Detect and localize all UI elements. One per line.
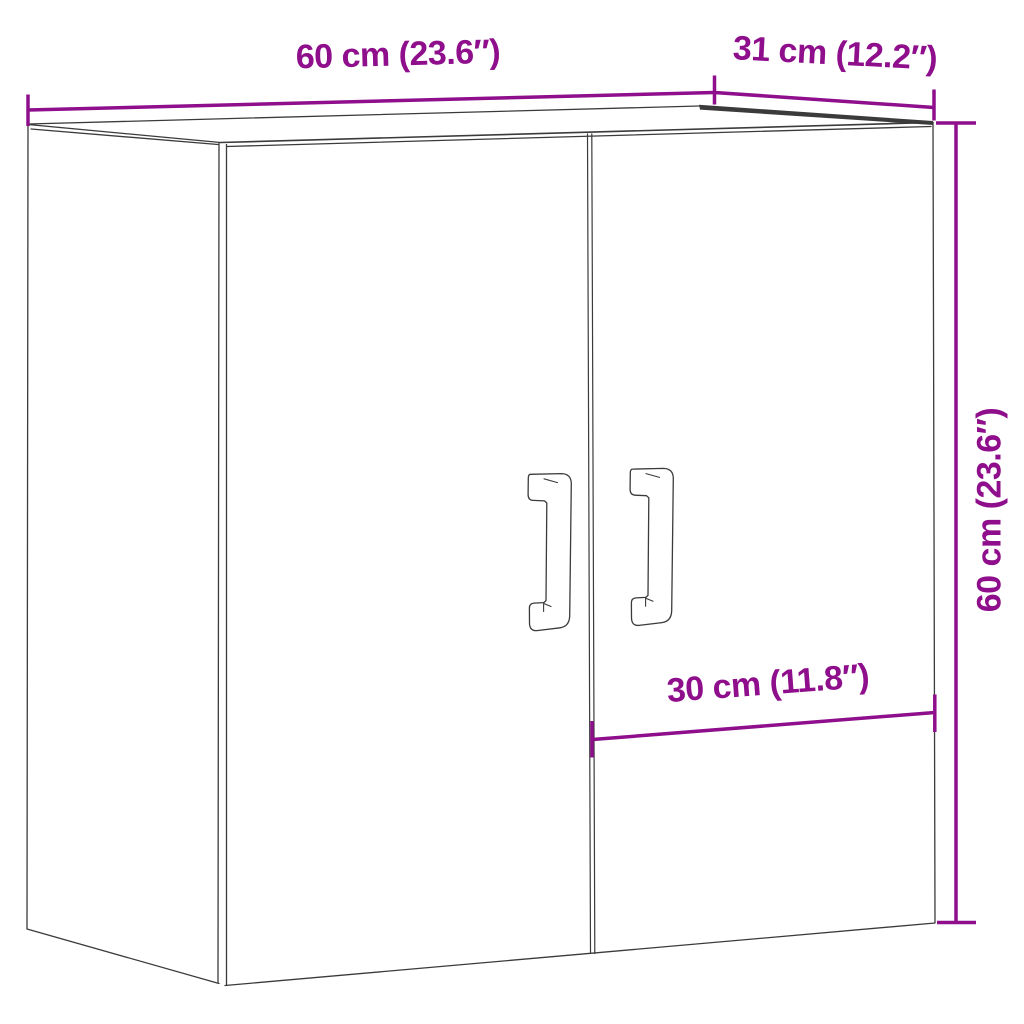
dimension-line-depth xyxy=(715,93,935,108)
cabinet-body xyxy=(27,105,935,986)
left-side-panel-edge xyxy=(27,125,219,984)
cabinet-line-art xyxy=(0,0,1024,1024)
dimension-label-height: 60 cm (23.6″) xyxy=(971,408,1010,612)
product-dimension-image: 60 cm (23.6″) 31 cm (12.2″) 60 cm (23.6″… xyxy=(0,0,1024,1024)
top-left-edge-outer xyxy=(28,125,221,143)
top-left-edge-inner xyxy=(31,129,218,145)
dimension-line-width xyxy=(28,93,715,111)
dimension-label-width: 60 cm (23.6″) xyxy=(295,33,500,78)
doors-top-edge xyxy=(227,127,931,147)
top-front-edge xyxy=(221,123,934,143)
front-right-edge xyxy=(933,123,935,923)
bottom-front-edge xyxy=(225,923,935,986)
top-right-edge xyxy=(699,105,933,125)
handle-outline xyxy=(528,474,571,631)
dimension-line-door-width xyxy=(593,713,936,740)
front-left-edge-outer xyxy=(218,143,219,983)
door-gap-line-left xyxy=(588,134,591,953)
right-door-handle xyxy=(630,468,673,625)
door-gap-line-right xyxy=(592,134,595,954)
dimension-lines xyxy=(28,76,976,923)
left-door-handle xyxy=(528,474,571,631)
